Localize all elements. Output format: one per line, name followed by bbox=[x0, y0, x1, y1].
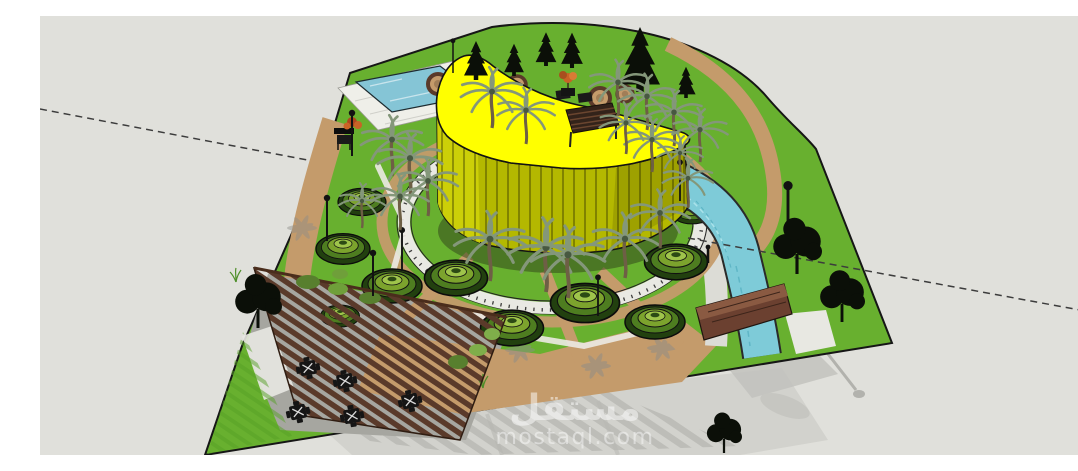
terraced-mound bbox=[425, 260, 488, 296]
watermark-domain: mostaql.com bbox=[495, 425, 654, 450]
model-viewport[interactable]: مستقل mostaql.com bbox=[40, 16, 1078, 455]
terraced-mound bbox=[625, 305, 685, 339]
scene-canvas[interactable]: مستقل mostaql.com bbox=[40, 16, 1078, 455]
terraced-mound bbox=[551, 283, 620, 322]
watermark-arabic: مستقل bbox=[509, 388, 641, 429]
terraced-mound bbox=[645, 244, 708, 280]
terraced-mound bbox=[316, 234, 370, 265]
watermark: مستقل mostaql.com bbox=[495, 388, 654, 450]
